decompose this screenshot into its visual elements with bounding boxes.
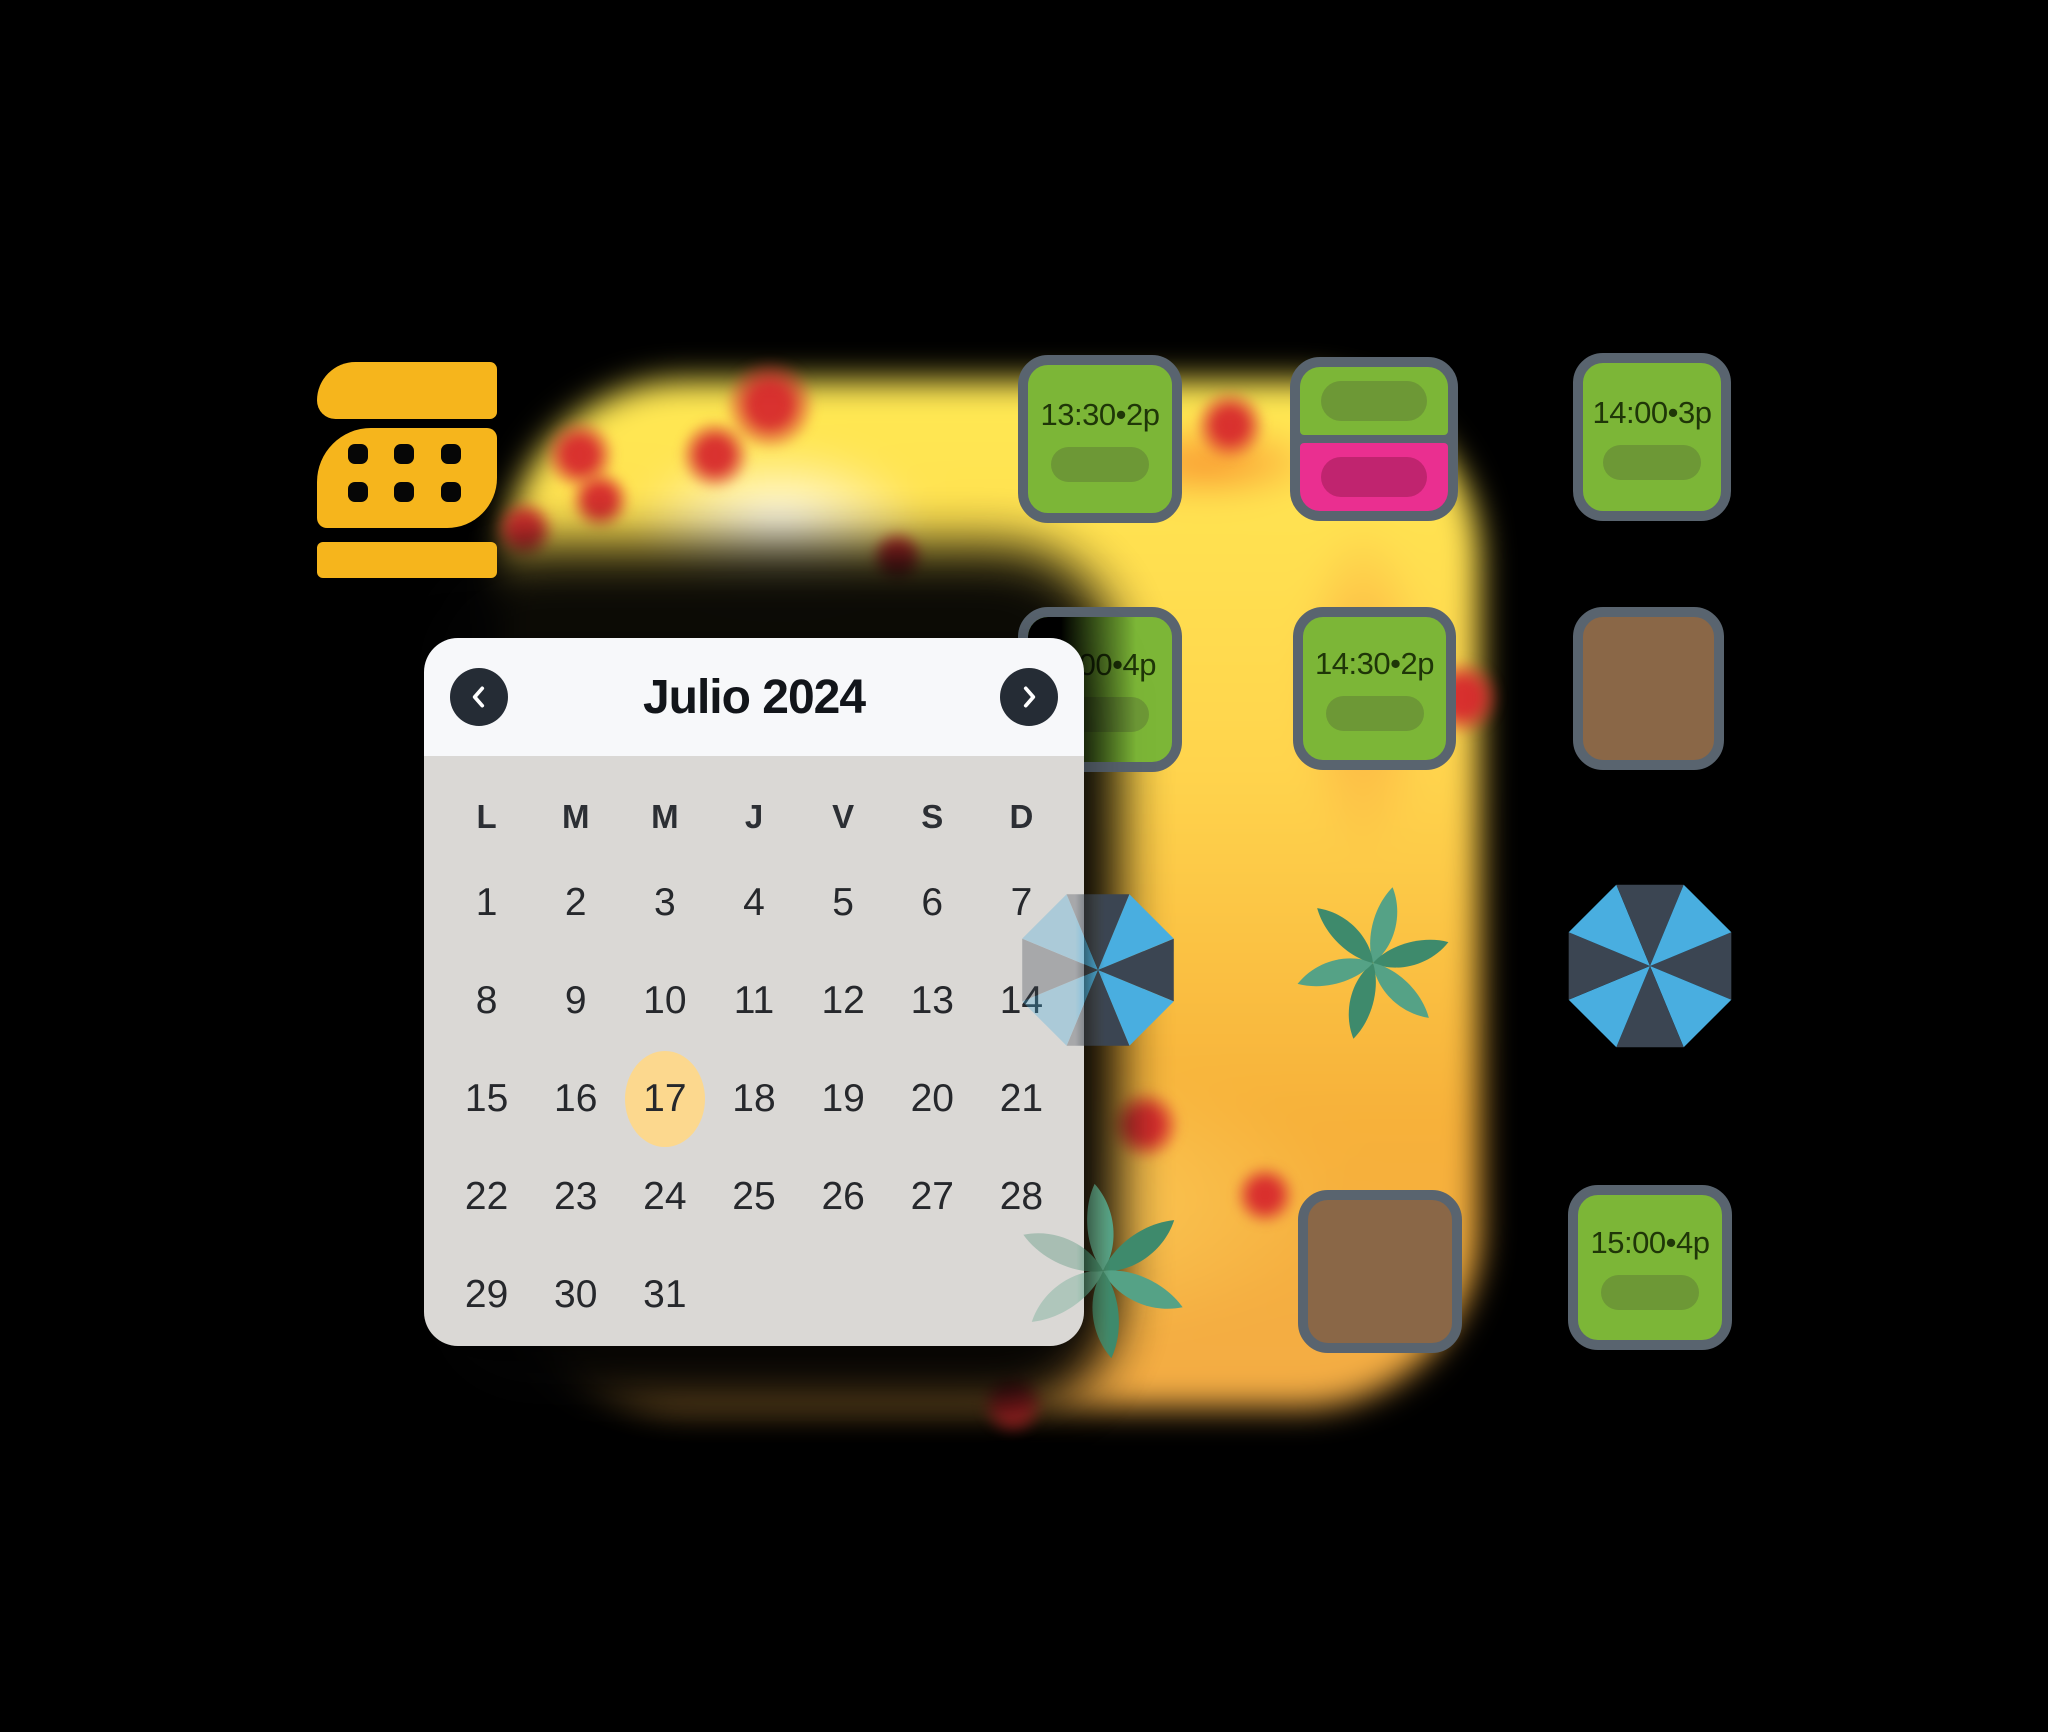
table-reservation-1430[interactable]: 14:30•2p (1293, 607, 1456, 770)
calendar-day (799, 1246, 888, 1344)
calendar-day[interactable]: 30 (531, 1246, 620, 1344)
table-reservation-1330[interactable]: 13:30•2p (1018, 355, 1182, 523)
calendar-day-selected[interactable]: 17 (620, 1050, 709, 1148)
table-reservation-1500[interactable]: 15:00•4p (1568, 1185, 1732, 1350)
table-brown-empty[interactable] (1298, 1190, 1462, 1353)
calendar-day[interactable]: 4 (709, 854, 798, 952)
calendar-day (888, 1246, 977, 1344)
calendar-day[interactable]: 5 (799, 854, 888, 952)
calendar-day[interactable]: 11 (709, 952, 798, 1050)
calendar-day[interactable]: 21 (977, 1050, 1066, 1148)
table-half-pink (1300, 443, 1448, 511)
calendar-grid: L M M J V S D 1 2 3 4 5 6 7 8 9 10 11 12… (442, 780, 1066, 1344)
calendar-day[interactable]: 24 (620, 1148, 709, 1246)
calendar-day[interactable]: 6 (888, 854, 977, 952)
weekday-header: L (442, 780, 531, 854)
reservation-time-label: 14:30•2p (1315, 646, 1434, 682)
weekday-header: M (531, 780, 620, 854)
calendar-day[interactable]: 25 (709, 1148, 798, 1246)
logo-dot (441, 482, 461, 502)
heatmap-red-spot (1195, 390, 1265, 460)
prev-month-button[interactable] (450, 668, 508, 726)
calendar-day[interactable]: 1 (442, 854, 531, 952)
weekday-header: J (709, 780, 798, 854)
calendar-day[interactable]: 23 (531, 1148, 620, 1246)
calendar-day[interactable]: 2 (531, 854, 620, 952)
reservation-time-label: 14:00•3p (1593, 395, 1712, 431)
brand-logo (317, 362, 497, 578)
heatmap-red-spot (1110, 1090, 1180, 1160)
calendar-day[interactable]: 19 (799, 1050, 888, 1148)
plant-icon (1288, 878, 1458, 1048)
calendar-day (709, 1246, 798, 1344)
chevron-left-icon (466, 684, 492, 710)
calendar-day[interactable]: 13 (888, 952, 977, 1050)
reservation-time-label: 15:00•4p (1591, 1225, 1710, 1261)
reservation-time-label: 13:30•2p (1041, 397, 1160, 433)
weekday-header: D (977, 780, 1066, 854)
calendar-header: Julio 2024 (424, 638, 1084, 756)
chevron-right-icon (1016, 684, 1042, 710)
calendar-day[interactable]: 26 (799, 1148, 888, 1246)
table-half-green (1300, 367, 1448, 435)
calendar-day[interactable]: 9 (531, 952, 620, 1050)
calendar-day[interactable]: 10 (620, 952, 709, 1050)
logo-bottom-bar (317, 542, 497, 578)
calendar-day[interactable]: 27 (888, 1148, 977, 1246)
calendar-body: L M M J V S D 1 2 3 4 5 6 7 8 9 10 11 12… (424, 756, 1084, 1346)
weekday-header: S (888, 780, 977, 854)
logo-dot (394, 482, 414, 502)
logo-middle-bar (317, 428, 497, 528)
table-split-green-pink[interactable] (1290, 357, 1458, 521)
logo-dot (348, 482, 368, 502)
patio-umbrella-icon (1016, 888, 1180, 1052)
weekday-header: V (799, 780, 888, 854)
date-picker-calendar: Julio 2024 L M M J V S D 1 2 3 4 5 (424, 638, 1084, 1346)
table-reservation-1400[interactable]: 14:00•3p (1573, 353, 1731, 521)
table-seat-pill (1321, 381, 1427, 421)
calendar-day[interactable]: 22 (442, 1148, 531, 1246)
table-seat-pill (1321, 457, 1427, 497)
table-seat-pill (1051, 447, 1149, 482)
logo-dot (441, 444, 461, 464)
next-month-button[interactable] (1000, 668, 1058, 726)
calendar-month-title: Julio 2024 (508, 670, 1000, 725)
heatmap-red-spot (680, 420, 750, 490)
logo-top-bar (317, 362, 497, 419)
heatmap-red-spot (570, 470, 630, 530)
restaurant-floorplan-illustration: 13:30•2p 14:00•3p 00•4p 14:30•2p (0, 0, 2048, 1732)
calendar-day[interactable]: 18 (709, 1050, 798, 1148)
table-brown-empty[interactable] (1573, 607, 1724, 770)
calendar-day[interactable]: 29 (442, 1246, 531, 1344)
weekday-header: M (620, 780, 709, 854)
calendar-day[interactable]: 15 (442, 1050, 531, 1148)
calendar-day[interactable]: 12 (799, 952, 888, 1050)
logo-dot (348, 444, 368, 464)
patio-umbrella-icon (1562, 878, 1738, 1054)
heatmap-red-spot (1235, 1165, 1295, 1225)
table-seat-pill (1603, 445, 1701, 480)
table-seat-pill (1326, 696, 1424, 731)
calendar-day[interactable]: 16 (531, 1050, 620, 1148)
calendar-day[interactable]: 8 (442, 952, 531, 1050)
table-seat-pill (1601, 1275, 1699, 1310)
calendar-day[interactable]: 31 (620, 1246, 709, 1344)
plant-icon (1008, 1176, 1198, 1366)
calendar-day[interactable]: 20 (888, 1050, 977, 1148)
logo-dot (394, 444, 414, 464)
calendar-day[interactable]: 3 (620, 854, 709, 952)
